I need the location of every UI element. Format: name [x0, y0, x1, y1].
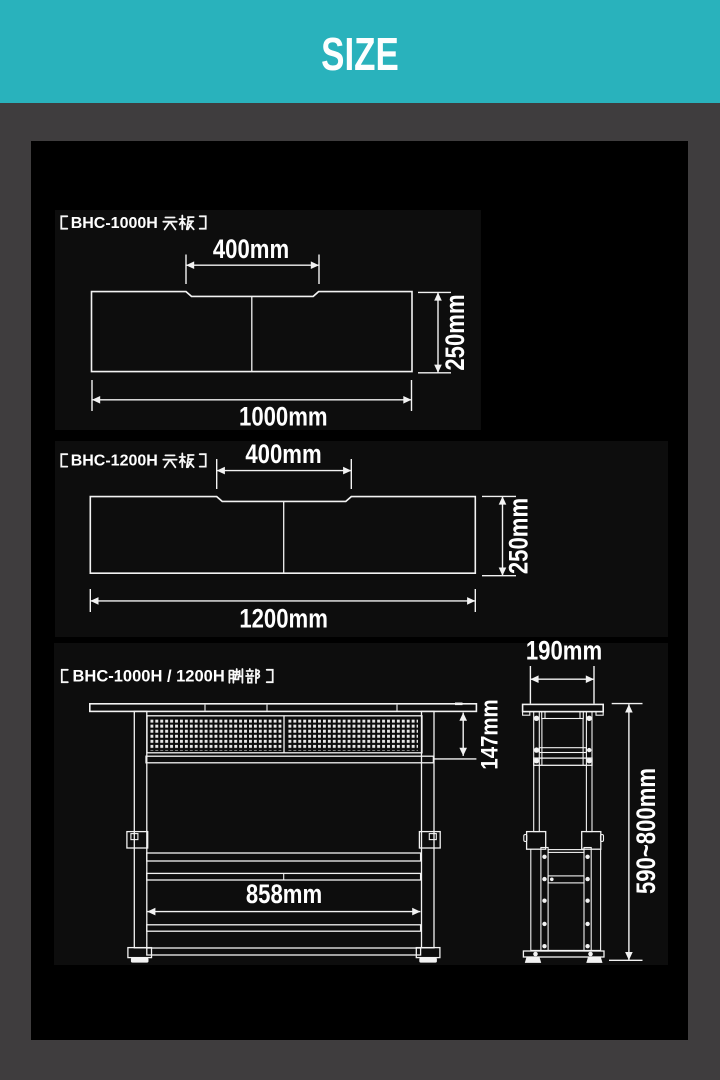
svg-text:250mm: 250mm: [505, 498, 535, 574]
svg-text:400mm: 400mm: [245, 440, 321, 470]
svg-text:147mm: 147mm: [476, 699, 503, 769]
svg-text:590~800mm: 590~800mm: [632, 768, 662, 894]
svg-text:250mm: 250mm: [441, 294, 471, 370]
svg-text:BHC-1000H / 1200H: BHC-1000H / 1200H: [73, 668, 225, 686]
svg-text:858mm: 858mm: [246, 880, 322, 910]
svg-text:1000mm: 1000mm: [239, 403, 328, 433]
svg-text:1200mm: 1200mm: [239, 604, 328, 634]
svg-text:BHC-1000H: BHC-1000H: [71, 215, 158, 232]
svg-text:BHC-1200H: BHC-1200H: [71, 453, 158, 470]
svg-text:190mm: 190mm: [526, 637, 602, 667]
svg-text:400mm: 400mm: [213, 235, 289, 265]
